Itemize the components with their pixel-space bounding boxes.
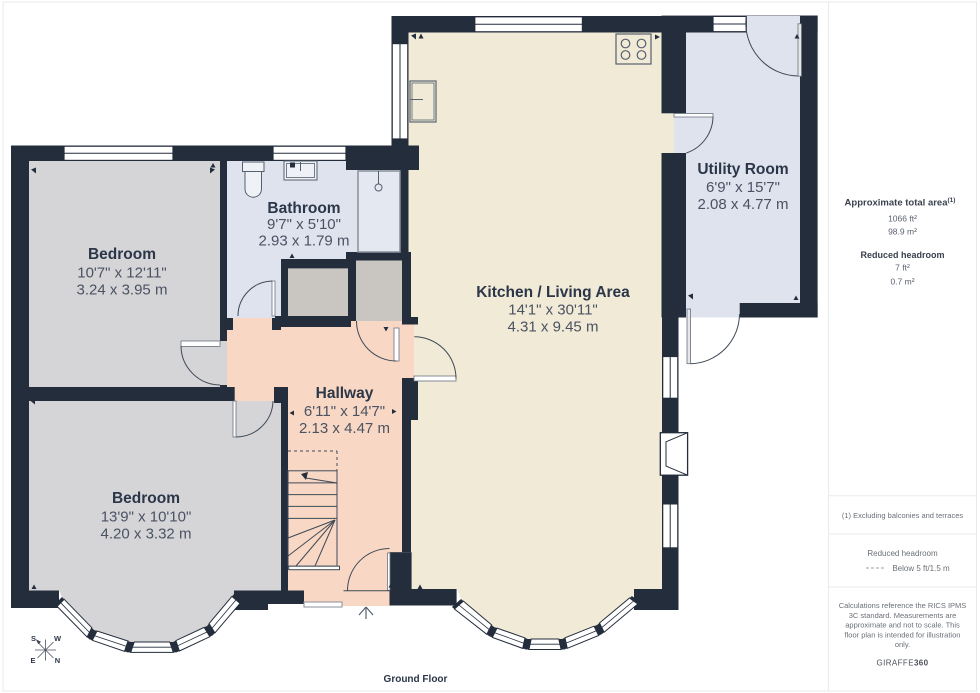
svg-text:Utility Room: Utility Room	[697, 161, 788, 178]
svg-text:4.31 x 9.45 m: 4.31 x 9.45 m	[508, 319, 599, 336]
svg-text:approximate and not to scale.: approximate and not to scale. This	[845, 621, 960, 630]
svg-text:Calculations reference the RIC: Calculations reference the RICS IPMS	[839, 601, 967, 610]
svg-text:1066 ft²: 1066 ft²	[888, 214, 917, 224]
svg-text:3.24 x 3.95 m: 3.24 x 3.95 m	[77, 282, 168, 299]
svg-text:only.: only.	[895, 640, 910, 649]
svg-text:2.13 x 4.47 m: 2.13 x 4.47 m	[299, 420, 390, 437]
svg-text:14'1" x 30'11": 14'1" x 30'11"	[508, 302, 598, 319]
svg-text:6'9" x 15'7": 6'9" x 15'7"	[706, 179, 780, 196]
svg-text:2.08 x 4.77 m: 2.08 x 4.77 m	[698, 196, 789, 213]
svg-text:7 ft²: 7 ft²	[895, 263, 910, 273]
svg-text:W: W	[54, 634, 62, 643]
svg-text:0.7 m²: 0.7 m²	[890, 277, 914, 287]
svg-text:Bedroom: Bedroom	[88, 246, 156, 263]
svg-text:98.9 m²: 98.9 m²	[888, 227, 917, 237]
svg-text:E: E	[30, 656, 35, 665]
svg-text:Below 5 ft/1.5 m: Below 5 ft/1.5 m	[892, 564, 950, 573]
svg-text:floor plan is intended for ill: floor plan is intended for illustration	[845, 630, 961, 639]
svg-text:4.20 x 3.32 m: 4.20 x 3.32 m	[101, 526, 192, 543]
svg-text:Bathroom: Bathroom	[267, 200, 340, 217]
svg-text:Kitchen / Living Area: Kitchen / Living Area	[476, 284, 630, 301]
svg-text:13'9" x 10'10": 13'9" x 10'10"	[101, 509, 192, 526]
svg-text:2.93 x 1.79 m: 2.93 x 1.79 m	[259, 233, 350, 250]
svg-text:Approximate total area(1): Approximate total area(1)	[845, 197, 956, 209]
svg-text:N: N	[55, 656, 60, 665]
svg-text:(1) Excluding balconies and te: (1) Excluding balconies and terraces	[842, 511, 964, 520]
svg-text:9'7" x 5'10": 9'7" x 5'10"	[267, 216, 341, 233]
svg-text:Bedroom: Bedroom	[112, 490, 180, 507]
svg-text:6'11" x 14'7": 6'11" x 14'7"	[304, 403, 385, 420]
svg-text:Hallway: Hallway	[316, 385, 374, 402]
svg-text:Reduced headroom: Reduced headroom	[860, 250, 944, 260]
svg-text:Ground Floor: Ground Floor	[384, 674, 448, 685]
svg-text:10'7" x 12'11": 10'7" x 12'11"	[77, 265, 167, 282]
svg-text:Reduced headroom: Reduced headroom	[867, 549, 938, 558]
svg-text:S: S	[31, 634, 36, 643]
svg-text:3C standard. Measurements are: 3C standard. Measurements are	[849, 611, 957, 620]
svg-text:GIRAFFE360: GIRAFFE360	[876, 659, 928, 668]
